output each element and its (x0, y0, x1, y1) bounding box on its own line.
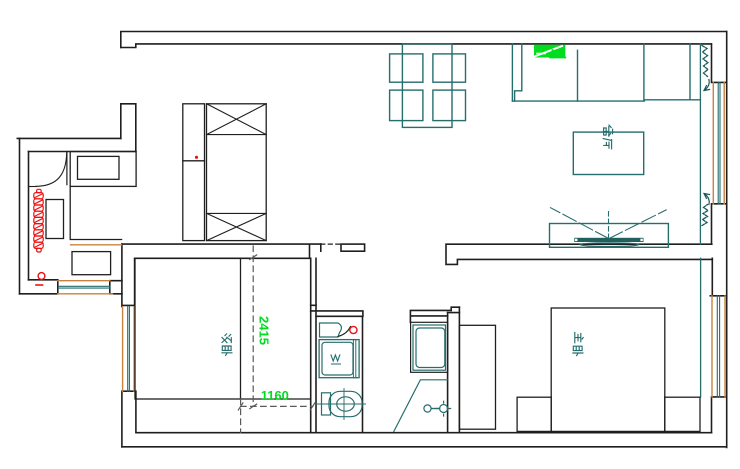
svg-text:2415: 2415 (257, 316, 272, 345)
svg-text:1160: 1160 (261, 388, 289, 403)
